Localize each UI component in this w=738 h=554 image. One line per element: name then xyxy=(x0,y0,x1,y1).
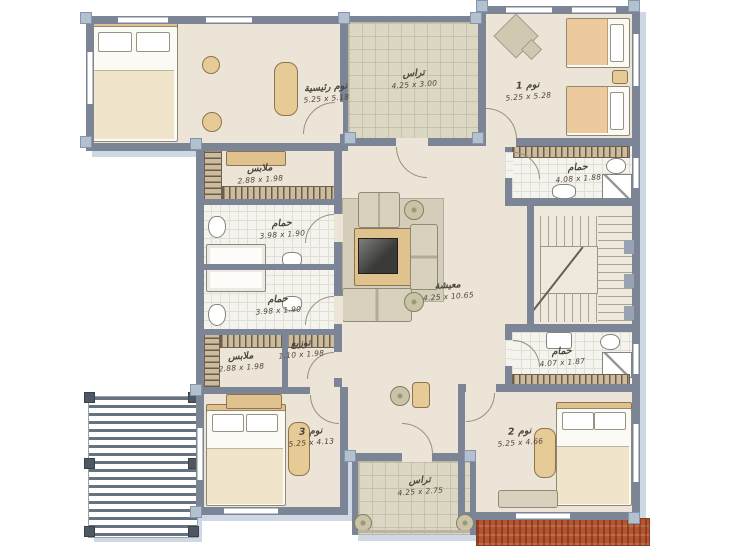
pergola-post xyxy=(84,526,95,537)
wall-terrace-rail xyxy=(348,16,482,22)
nightstand xyxy=(202,56,220,74)
bench xyxy=(498,490,558,508)
bath-counter xyxy=(512,146,630,158)
window xyxy=(196,428,204,480)
door-gap xyxy=(486,138,516,147)
pillow xyxy=(212,414,244,432)
window xyxy=(506,6,552,14)
bed-blanket xyxy=(94,70,174,139)
window xyxy=(632,34,640,86)
wall xyxy=(505,384,640,392)
column xyxy=(470,12,482,24)
pillow xyxy=(98,32,132,52)
door-gap xyxy=(334,296,343,324)
window xyxy=(632,424,640,482)
door-gap xyxy=(310,387,340,395)
pergola-post xyxy=(188,526,199,537)
window xyxy=(632,158,640,188)
window xyxy=(572,6,616,14)
door-gap xyxy=(505,152,513,178)
bed-blanket xyxy=(567,19,608,65)
wall xyxy=(86,143,348,151)
wall xyxy=(505,324,640,332)
sink xyxy=(552,184,576,199)
pillow xyxy=(562,412,594,430)
brick-entry-steps xyxy=(476,518,650,546)
bed-blanket xyxy=(557,446,629,504)
sofa-bottom xyxy=(342,288,412,322)
wall xyxy=(198,329,342,335)
pergola-post xyxy=(84,458,95,469)
bathtub xyxy=(206,268,266,292)
dresser xyxy=(226,394,282,409)
pillow xyxy=(610,24,624,62)
toilet xyxy=(208,216,226,238)
door-gap xyxy=(334,352,343,378)
pergola-deck xyxy=(88,396,198,538)
wall xyxy=(478,6,486,146)
nightstand xyxy=(612,70,628,84)
column xyxy=(80,12,92,24)
stairs-lower-flight xyxy=(540,292,602,322)
sofa-top xyxy=(358,192,400,228)
column xyxy=(338,12,350,24)
stairs-landing xyxy=(540,246,598,294)
terrace-step-edge xyxy=(358,530,470,533)
plant xyxy=(390,386,410,406)
door-gap xyxy=(334,214,343,242)
column xyxy=(190,138,202,150)
window xyxy=(206,16,252,24)
window xyxy=(224,507,278,515)
bed-blanket xyxy=(567,87,608,133)
wall xyxy=(198,264,342,270)
column xyxy=(80,136,92,148)
plant xyxy=(404,200,424,220)
door-gap xyxy=(505,340,513,366)
stairs-upper-flight xyxy=(540,216,602,246)
pillow xyxy=(136,32,170,52)
window xyxy=(86,52,94,104)
bed-blanket xyxy=(207,448,283,504)
wall xyxy=(505,198,640,206)
pillow xyxy=(594,412,626,430)
window xyxy=(118,16,168,24)
entry-console xyxy=(412,382,430,408)
nightstand xyxy=(202,112,222,132)
column xyxy=(464,450,476,462)
column xyxy=(190,384,202,396)
room-label-hall: توزيع 1.10 x 1.98 xyxy=(270,336,331,361)
door-gap xyxy=(396,138,428,147)
window xyxy=(632,344,640,374)
door-gap xyxy=(334,102,343,134)
door-gap xyxy=(402,453,432,462)
floor-plan: نوم رئيسية 5.25 x 5.18 تراس 4.25 x 3.00 … xyxy=(0,0,738,554)
wall-pilaster xyxy=(624,274,634,288)
wall xyxy=(527,206,534,330)
column xyxy=(344,450,356,462)
column xyxy=(476,0,488,12)
column xyxy=(344,132,356,144)
column xyxy=(628,0,640,12)
column xyxy=(190,506,202,518)
column xyxy=(472,132,484,144)
column xyxy=(628,512,640,524)
wall-pilaster xyxy=(624,240,634,254)
toilet xyxy=(208,304,226,326)
wall-pilaster xyxy=(624,306,634,320)
wall xyxy=(198,199,342,205)
pillow xyxy=(610,92,624,130)
door-gap xyxy=(466,384,496,393)
window xyxy=(516,512,570,520)
pergola-post xyxy=(84,392,95,403)
tv xyxy=(358,238,398,274)
